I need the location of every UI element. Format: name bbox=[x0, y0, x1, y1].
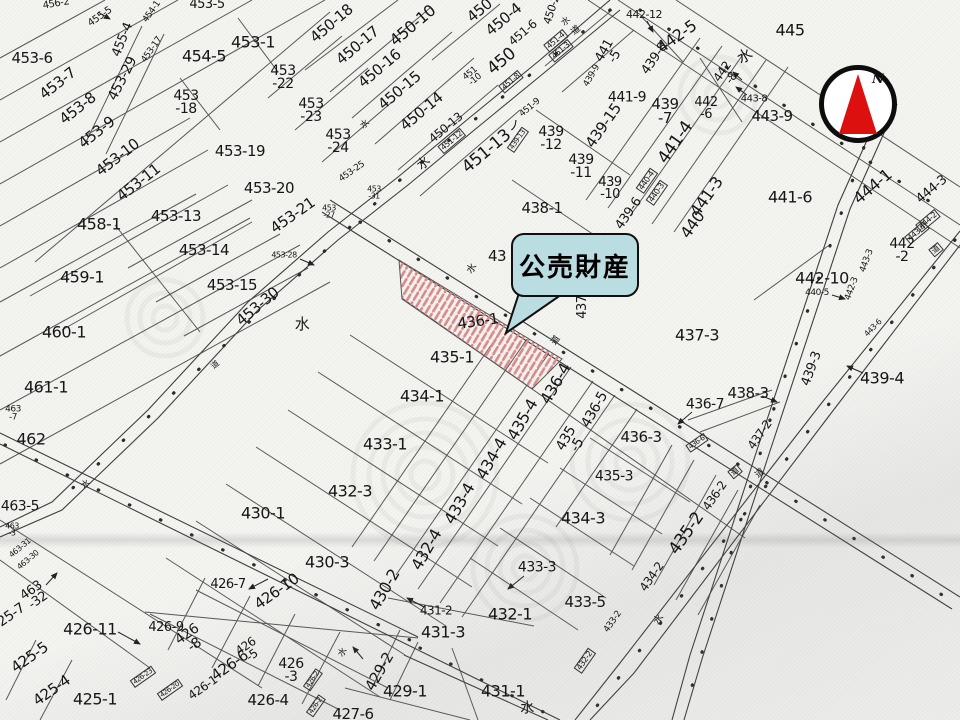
map-label-435--5: 435 -5 bbox=[555, 425, 590, 460]
map-label-442--6: 442 -6 bbox=[694, 97, 717, 121]
map-label-443-9: 443-9 bbox=[751, 110, 792, 124]
map-label-455-5: 455-5 bbox=[86, 6, 113, 29]
map-label-454-1: 454-1 bbox=[142, 0, 162, 24]
map-label-442--8: 442 -8 bbox=[712, 60, 742, 90]
map-label-455-4: 455-4 bbox=[111, 21, 135, 58]
map-label-水: 水 bbox=[466, 262, 479, 275]
map-label-450-18: 450-18 bbox=[308, 3, 355, 46]
map-label-433-1: 433-1 bbox=[363, 438, 407, 453]
map-label-435-1: 435-1 bbox=[430, 351, 474, 366]
map-label-426-4: 426-4 bbox=[247, 694, 288, 708]
map-label-439--7: 439 -7 bbox=[651, 98, 678, 126]
parcel-labels-layer: 456-2455-5455-4454-1453-17453-5453-6453-… bbox=[0, 0, 960, 720]
map-label-434-2: 434-2 bbox=[638, 561, 666, 594]
map-label-水: 水 bbox=[337, 647, 349, 659]
map-label-432-4: 432-4 bbox=[410, 527, 445, 572]
map-label-430-1: 430-1 bbox=[241, 507, 285, 522]
map-label-431-2: 431-2 bbox=[420, 605, 452, 616]
map-label-道: 道 bbox=[550, 335, 562, 347]
map-label-426-1: 426-1 bbox=[187, 674, 220, 702]
map-label-439-4: 439-4 bbox=[860, 372, 904, 387]
map-label-425-1: 425-1 bbox=[73, 693, 117, 708]
map-label-453-25: 453-25 bbox=[338, 160, 366, 183]
map-label-453-14: 453-14 bbox=[179, 244, 229, 258]
map-label-458-1: 458-1 bbox=[77, 218, 121, 233]
map-label-435-4: 435-4 bbox=[506, 397, 541, 442]
map-label-453--22: 453 -22 bbox=[270, 65, 295, 91]
map-label-426-20: 426-20 bbox=[157, 679, 183, 701]
map-label-463-5: 463-5 bbox=[1, 501, 39, 514]
map-label-436-3: 436-3 bbox=[620, 431, 661, 445]
map-label-441-6: 441-6 bbox=[768, 191, 812, 206]
map-label-427-6: 427-6 bbox=[332, 708, 373, 720]
map-label-水: 水 bbox=[735, 47, 754, 66]
map-label-442-10: 442-10 bbox=[795, 272, 849, 287]
map-label-426-2: 426-2 bbox=[306, 694, 326, 717]
map-label-453-1: 453-1 bbox=[231, 36, 275, 51]
map-label-434-3: 434-3 bbox=[561, 512, 605, 527]
map-label-453-17: 453-17 bbox=[140, 36, 163, 64]
map-label-443-8: 443-8 bbox=[741, 94, 768, 103]
map-label-425-7: 425-7 bbox=[0, 602, 27, 634]
map-label-453-20: 453-20 bbox=[244, 182, 294, 196]
map-label-453-11: 453-11 bbox=[115, 162, 163, 204]
map-label-439--10: 439 -10 bbox=[598, 177, 621, 201]
map-label-水: 水 bbox=[80, 479, 92, 491]
map-label-道: 道 bbox=[754, 468, 766, 480]
map-label-439-9: 439-9 bbox=[583, 64, 602, 89]
map-label-429-1: 429-1 bbox=[383, 685, 427, 700]
map-label-451-9: 451-9 bbox=[518, 97, 541, 119]
map-label-453-9: 453-9 bbox=[77, 115, 118, 151]
map-label-434-4: 434-4 bbox=[475, 436, 510, 481]
map-label-460-1: 460-1 bbox=[42, 326, 86, 341]
map-label-426-2: 426-2 bbox=[303, 668, 323, 691]
map-label-433-4: 433-4 bbox=[443, 481, 478, 526]
map-label-426-7: 426-7 bbox=[210, 579, 245, 591]
map-label-453--23: 453 -23 bbox=[298, 98, 323, 124]
map-label-道: 道 bbox=[570, 25, 582, 37]
map-label-440-5: 440-5 bbox=[805, 289, 829, 297]
map-label-463--3: 463 -3 bbox=[5, 523, 19, 538]
map-label-43: 43 bbox=[488, 250, 506, 264]
map-label-453-29: 453-29 bbox=[107, 55, 140, 102]
map-label-433-2: 433-2 bbox=[603, 610, 623, 634]
map-label-453-28: 453-28 bbox=[271, 251, 296, 258]
map-label-425-4: 425-4 bbox=[31, 674, 73, 709]
map-label-450-2: 450-2 bbox=[543, 0, 562, 26]
map-label-442-12: 442-12 bbox=[626, 10, 662, 20]
map-label-451--10: 451 -10 bbox=[462, 66, 485, 89]
map-label-道: 道 bbox=[727, 464, 742, 479]
map-label-453-7: 453-7 bbox=[38, 66, 79, 102]
cadastral-map: 456-2455-5455-4454-1453-17453-5453-6453-… bbox=[0, 0, 960, 720]
map-label-426-9: 426-9 bbox=[148, 622, 183, 634]
map-label-463--7: 463 -7 bbox=[5, 406, 21, 423]
map-label-426-11: 426-11 bbox=[63, 623, 117, 638]
map-label-453-6: 453-6 bbox=[11, 52, 52, 66]
map-label-水: 水 bbox=[653, 613, 666, 626]
map-label-442-5: 442-5 bbox=[655, 18, 699, 55]
map-label-443-6: 443-6 bbox=[863, 318, 883, 338]
compass-rose: N bbox=[819, 65, 897, 143]
map-label-432-3: 432-3 bbox=[328, 485, 372, 500]
map-label-道: 道 bbox=[928, 242, 943, 257]
map-label-453-8: 453-8 bbox=[58, 91, 99, 127]
map-label-437-2: 437-2 bbox=[746, 419, 774, 452]
map-label-439-15: 439-15 bbox=[584, 102, 624, 151]
map-label-439--11: 439 -11 bbox=[568, 154, 593, 180]
map-label-431-3: 431-3 bbox=[421, 626, 465, 641]
map-label-438-3: 438-3 bbox=[727, 387, 768, 401]
map-label-443-3: 443-3 bbox=[859, 248, 875, 273]
map-label-453-5: 453-5 bbox=[189, 0, 224, 11]
map-label-439--12: 439 -12 bbox=[538, 126, 563, 152]
map-label-453--24: 453 -24 bbox=[325, 129, 350, 155]
map-label-456-2: 456-2 bbox=[42, 0, 70, 11]
map-label-445: 445 bbox=[775, 24, 804, 39]
map-label-437-3: 437-3 bbox=[675, 329, 719, 344]
map-label-451-13: 451-13 bbox=[460, 128, 514, 177]
auction-callout-text: 公売財産 bbox=[519, 247, 631, 284]
map-label-435-2: 435-2 bbox=[667, 510, 707, 557]
map-label-水: 水 bbox=[520, 703, 534, 716]
map-label-436-1: 436-1 bbox=[457, 312, 500, 331]
map-label-426-23: 426-23 bbox=[130, 666, 156, 688]
map-label-436-7: 436-7 bbox=[686, 399, 724, 412]
map-label-433-3: 433-3 bbox=[518, 562, 556, 575]
map-label-432-1: 432-1 bbox=[488, 608, 532, 623]
map-label-444-3: 444-3 bbox=[915, 174, 950, 206]
map-label-水: 水 bbox=[359, 119, 371, 131]
map-label-432-2: 432-2 bbox=[574, 648, 597, 674]
map-label-水: 水 bbox=[295, 318, 310, 332]
map-label-462: 462 bbox=[16, 433, 45, 448]
map-label-430-2: 430-2 bbox=[368, 567, 403, 612]
map-label-442--2: 442 -2 bbox=[889, 238, 914, 264]
map-label-434-1: 434-1 bbox=[400, 390, 444, 405]
map-label-459-1: 459-1 bbox=[60, 271, 104, 286]
map-label-453-13: 453-13 bbox=[151, 210, 201, 224]
map-label-438-1: 438-1 bbox=[521, 202, 562, 216]
map-label-436-6: 436-6 bbox=[685, 433, 708, 453]
map-label-440: 440 bbox=[679, 209, 708, 241]
auction-callout-bubble: 公売財産 bbox=[511, 233, 639, 297]
compass-north-label: N bbox=[872, 72, 884, 87]
map-label-450-10: 450-10 bbox=[388, 3, 439, 49]
map-label-453--18: 453 -18 bbox=[173, 90, 198, 116]
map-label-426--3: 426 -3 bbox=[278, 658, 303, 684]
map-label-436-2: 436-2 bbox=[701, 480, 729, 513]
map-label-444-1: 444-1 bbox=[851, 167, 894, 207]
map-label-道: 道 bbox=[210, 360, 220, 370]
map-label-453-15: 453-15 bbox=[207, 279, 257, 293]
map-label-430-3: 430-3 bbox=[305, 556, 349, 571]
map-label-水: 水 bbox=[415, 155, 432, 172]
map-label-439-3: 439-3 bbox=[800, 350, 823, 387]
map-label-水: 水 bbox=[560, 16, 572, 28]
map-label-435-3: 435-3 bbox=[595, 471, 633, 484]
map-label-453--27: 453 -27 bbox=[322, 205, 336, 220]
map-label-461-1: 461-1 bbox=[24, 381, 68, 396]
map-label-425-5: 425-5 bbox=[9, 641, 51, 676]
map-label-436-5: 436-5 bbox=[580, 390, 610, 430]
map-label-433-5: 433-5 bbox=[564, 596, 605, 610]
map-label-426-10: 426-10 bbox=[253, 572, 302, 612]
map-label-436-4: 436-4 bbox=[539, 361, 574, 406]
map-label-453-19: 453-19 bbox=[215, 145, 265, 159]
map-label-431-1: 431-1 bbox=[481, 685, 525, 700]
map-label-453-21: 453-21 bbox=[269, 196, 318, 236]
map-label-454-5: 454-5 bbox=[182, 50, 226, 65]
map-label-453--31: 453 -31 bbox=[367, 186, 381, 201]
